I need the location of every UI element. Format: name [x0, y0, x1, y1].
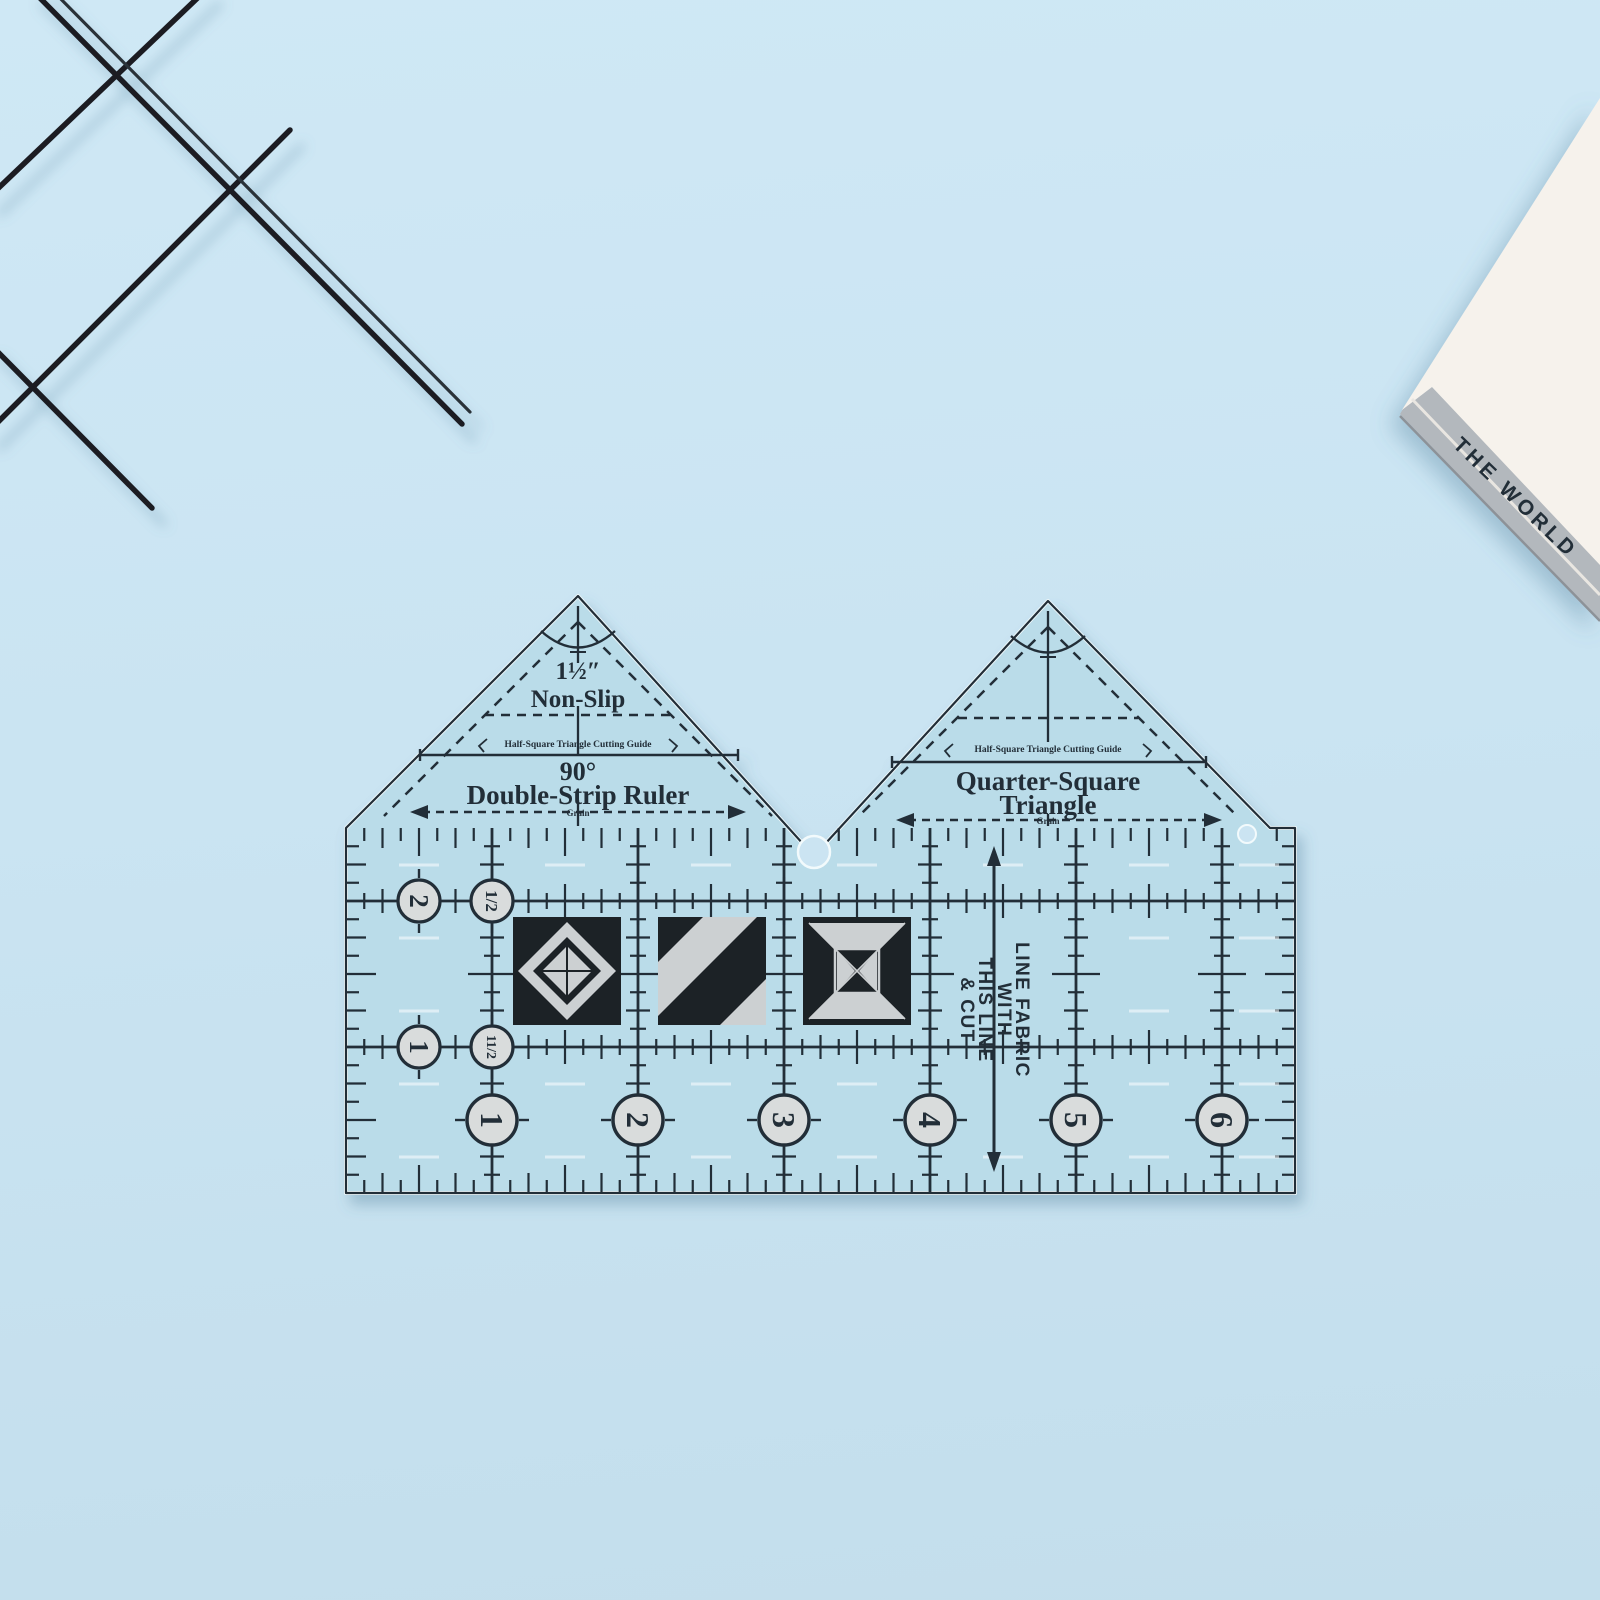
fabric-note-line2: WITH: [993, 983, 1014, 1038]
wire-grid: [0, 0, 470, 508]
bottom-number-5: 5: [1058, 1112, 1094, 1128]
bottom-number-1: 1: [474, 1112, 510, 1128]
quilt-block-stripes: [658, 917, 766, 1025]
bottom-number-4: 4: [912, 1112, 948, 1128]
left-triangle-nonslip-label: Non-Slip: [531, 686, 625, 713]
bottom-number-2: 2: [620, 1112, 656, 1128]
half-scale-1-2: 1/2: [482, 890, 501, 912]
left-triangle-name-label: Double-Strip Ruler: [467, 780, 690, 810]
book: THE WORLD: [1400, 98, 1600, 621]
left-triangle-size-label: 1½″: [555, 658, 600, 685]
left-triangle-cutting-guide-label: Half-Square Triangle Cutting Guide: [504, 740, 651, 750]
scene-canvas: THE WORLD 1½″ Non-Slip Half-Square Trian…: [0, 0, 1600, 1600]
half-scale-1-1-2: 11/2: [483, 1035, 498, 1059]
quilting-ruler: 1½″ Non-Slip Half-Square Triangle Cuttin…: [346, 596, 1295, 1193]
right-triangle-cutting-guide-label: Half-Square Triangle Cutting Guide: [974, 745, 1121, 755]
left-triangle-grain-label: Grain: [566, 808, 589, 818]
right-triangle-grain-label: Grain: [1036, 816, 1059, 826]
left-scale-2: 2: [404, 894, 434, 908]
quilt-block-diamond: [513, 917, 621, 1025]
bottom-number-3: 3: [766, 1112, 802, 1128]
photo-scene: THE WORLD 1½″ Non-Slip Half-Square Trian…: [0, 0, 1600, 1600]
valley-hole: [798, 836, 830, 868]
quilt-block-hourglass: [803, 917, 911, 1025]
fabric-note-line4: & CUT: [956, 977, 977, 1043]
bottom-number-6: 6: [1204, 1112, 1240, 1128]
left-scale-1: 1: [404, 1040, 434, 1054]
hang-hole: [1238, 825, 1256, 843]
